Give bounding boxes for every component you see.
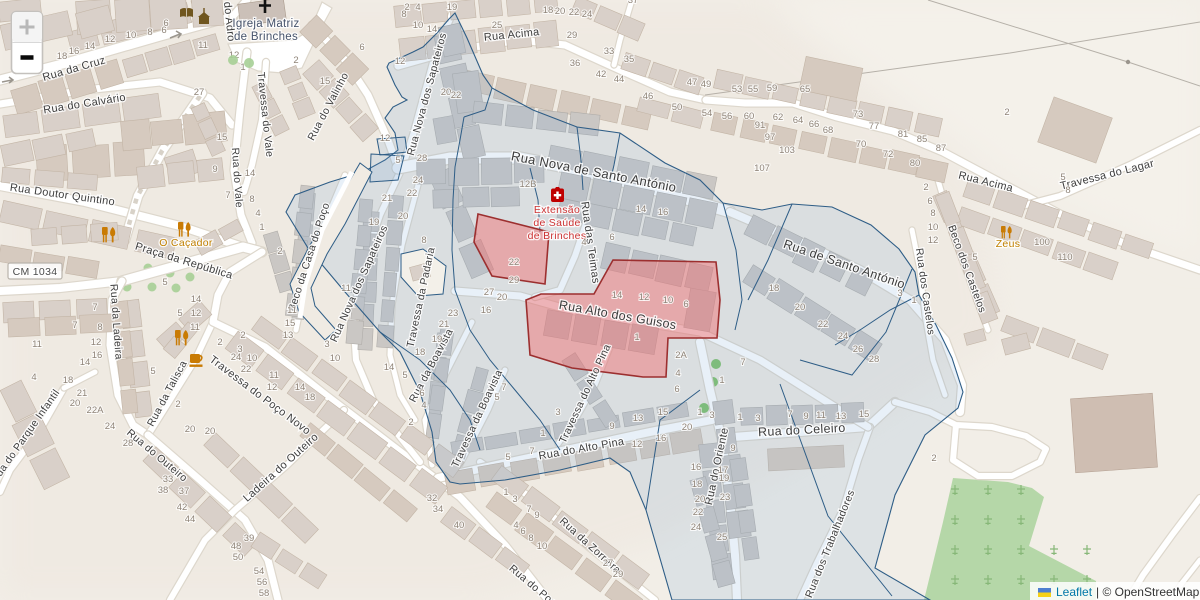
svg-text:2: 2 (240, 330, 245, 341)
svg-text:110: 110 (1057, 252, 1072, 263)
svg-text:20: 20 (398, 211, 409, 222)
svg-text:22: 22 (241, 364, 252, 375)
svg-text:23: 23 (720, 492, 731, 503)
svg-text:20: 20 (205, 426, 216, 437)
svg-text:11: 11 (32, 339, 42, 350)
svg-text:53: 53 (732, 84, 743, 95)
svg-text:22A: 22A (87, 405, 105, 416)
svg-text:15: 15 (320, 76, 331, 87)
svg-text:13: 13 (633, 413, 644, 424)
svg-text:18: 18 (415, 347, 426, 358)
svg-text:55: 55 (748, 84, 759, 95)
svg-text:14: 14 (191, 294, 202, 305)
svg-text:1: 1 (719, 375, 724, 386)
svg-text:14: 14 (85, 41, 96, 52)
svg-text:29: 29 (509, 275, 520, 286)
svg-text:22: 22 (818, 319, 829, 330)
svg-text:de Brinches: de Brinches (234, 31, 298, 43)
svg-text:6: 6 (674, 384, 679, 395)
svg-text:65: 65 (800, 84, 811, 95)
svg-text:7: 7 (501, 382, 506, 393)
svg-text:3: 3 (555, 407, 560, 418)
svg-text:28: 28 (869, 354, 880, 365)
svg-text:2: 2 (931, 453, 936, 464)
svg-text:5: 5 (150, 366, 155, 377)
svg-text:2: 2 (277, 246, 282, 257)
svg-text:37: 37 (628, 0, 639, 6)
svg-text:22: 22 (509, 257, 520, 268)
svg-text:50: 50 (233, 552, 244, 563)
svg-text:18: 18 (769, 283, 780, 294)
svg-text:36: 36 (570, 58, 581, 69)
svg-text:1: 1 (503, 487, 508, 498)
svg-text:6: 6 (520, 526, 525, 537)
svg-text:56: 56 (722, 111, 733, 122)
svg-text:13: 13 (283, 330, 294, 341)
svg-text:25: 25 (717, 532, 728, 543)
svg-text:4: 4 (581, 237, 586, 248)
svg-text:91: 91 (755, 120, 766, 131)
svg-text:23: 23 (448, 308, 459, 319)
svg-text:24: 24 (105, 421, 116, 432)
svg-text:4: 4 (31, 372, 36, 383)
svg-text:8: 8 (1065, 185, 1070, 196)
svg-text:18: 18 (63, 375, 74, 386)
svg-text:26: 26 (853, 344, 864, 355)
svg-text:20: 20 (497, 292, 508, 303)
svg-text:14: 14 (245, 168, 256, 179)
svg-text:5: 5 (402, 370, 407, 381)
svg-text:7: 7 (225, 190, 230, 201)
svg-text:20: 20 (555, 6, 566, 17)
svg-text:60: 60 (744, 111, 755, 122)
svg-text:3: 3 (897, 288, 902, 299)
svg-text:39: 39 (244, 533, 255, 544)
svg-text:38: 38 (158, 485, 169, 496)
svg-text:14: 14 (612, 290, 623, 301)
svg-text:8: 8 (421, 235, 426, 246)
svg-text:5: 5 (177, 308, 182, 319)
svg-text:21: 21 (439, 319, 450, 330)
svg-text:12: 12 (267, 382, 278, 393)
svg-text:2A: 2A (675, 350, 687, 361)
svg-text:73: 73 (853, 109, 864, 120)
svg-text:5: 5 (395, 155, 400, 166)
svg-text:10: 10 (663, 295, 674, 306)
svg-text:2: 2 (1004, 107, 1009, 118)
svg-text:2: 2 (217, 337, 222, 348)
svg-text:3: 3 (709, 410, 714, 421)
svg-text:11: 11 (190, 322, 200, 333)
svg-text:29: 29 (567, 30, 578, 41)
svg-text:1: 1 (259, 222, 264, 233)
svg-text:54: 54 (702, 108, 713, 119)
svg-text:66: 66 (809, 119, 820, 130)
svg-text:35: 35 (624, 54, 635, 65)
svg-text:20: 20 (441, 87, 452, 98)
svg-text:13: 13 (836, 411, 847, 422)
svg-text:6: 6 (359, 42, 364, 53)
svg-text:58: 58 (259, 588, 270, 599)
svg-text:6: 6 (683, 299, 688, 310)
svg-text:44: 44 (614, 74, 625, 85)
svg-text:22: 22 (451, 90, 462, 101)
svg-text:de Saúde: de Saúde (533, 217, 580, 229)
svg-text:87: 87 (936, 143, 947, 154)
svg-text:81: 81 (898, 129, 909, 140)
svg-text:29: 29 (613, 569, 624, 580)
svg-text:4: 4 (513, 520, 518, 531)
svg-text:5: 5 (505, 452, 510, 463)
svg-text:22: 22 (407, 188, 418, 199)
svg-text:103: 103 (779, 145, 795, 156)
svg-text:59: 59 (767, 83, 778, 94)
svg-text:27: 27 (603, 558, 614, 569)
svg-text:14: 14 (80, 357, 91, 368)
svg-text:8: 8 (401, 9, 406, 20)
svg-text:100: 100 (1034, 237, 1050, 248)
svg-text:12: 12 (632, 439, 643, 450)
svg-text:18: 18 (305, 392, 316, 403)
svg-text:8: 8 (147, 27, 152, 38)
svg-text:1: 1 (737, 412, 742, 423)
svg-text:85: 85 (917, 134, 928, 145)
svg-text:2: 2 (175, 399, 180, 410)
svg-text:15: 15 (285, 318, 296, 329)
svg-text:3: 3 (512, 494, 517, 505)
svg-text:42: 42 (177, 502, 188, 513)
svg-text:1: 1 (540, 428, 545, 439)
svg-text:20: 20 (70, 398, 81, 409)
svg-text:107: 107 (754, 163, 770, 174)
svg-text:10: 10 (928, 222, 939, 233)
svg-text:11: 11 (198, 40, 208, 51)
svg-text:8: 8 (97, 322, 102, 333)
svg-text:5: 5 (494, 392, 499, 403)
svg-text:14: 14 (295, 382, 306, 393)
svg-text:16: 16 (691, 462, 702, 473)
svg-text:1: 1 (911, 295, 916, 306)
svg-text:9: 9 (534, 510, 539, 521)
svg-text:21: 21 (382, 193, 393, 204)
svg-text:10: 10 (537, 541, 548, 552)
svg-text:2: 2 (408, 417, 413, 428)
svg-text:80: 80 (910, 158, 921, 169)
svg-text:4: 4 (255, 208, 260, 219)
svg-text:46: 46 (643, 91, 654, 102)
svg-text:6: 6 (609, 232, 614, 243)
svg-text:20: 20 (682, 422, 693, 433)
svg-text:3: 3 (324, 339, 329, 350)
svg-text:11: 11 (341, 283, 351, 294)
svg-text:62: 62 (773, 112, 784, 123)
svg-text:10: 10 (413, 20, 424, 31)
svg-text:42: 42 (596, 69, 607, 80)
svg-text:68: 68 (823, 125, 834, 136)
svg-text:14: 14 (427, 24, 438, 35)
svg-text:18: 18 (543, 5, 554, 16)
svg-text:64: 64 (793, 115, 804, 126)
svg-text:9: 9 (730, 443, 735, 454)
svg-text:12: 12 (105, 34, 116, 45)
svg-text:de Brinches: de Brinches (528, 230, 587, 242)
svg-text:2: 2 (923, 182, 928, 193)
svg-text:8: 8 (528, 533, 533, 544)
svg-text:12: 12 (91, 337, 102, 348)
svg-text:70: 70 (856, 139, 867, 150)
svg-text:6: 6 (419, 388, 424, 399)
svg-text:18: 18 (692, 479, 703, 490)
svg-text:27: 27 (194, 87, 205, 98)
svg-text:12: 12 (639, 292, 650, 303)
svg-text:12: 12 (191, 308, 202, 319)
svg-text:11: 11 (269, 370, 279, 381)
svg-text:CM 1034: CM 1034 (13, 266, 58, 278)
svg-text:2: 2 (293, 55, 298, 66)
svg-text:19: 19 (447, 2, 458, 13)
svg-text:44: 44 (185, 514, 196, 525)
svg-text:7: 7 (92, 302, 97, 313)
svg-text:Igreja Matriz: Igreja Matriz (232, 18, 299, 30)
svg-text:8: 8 (249, 194, 254, 205)
svg-text:10: 10 (330, 353, 341, 364)
svg-text:33: 33 (604, 46, 615, 57)
svg-text:27: 27 (484, 287, 495, 298)
svg-text:20: 20 (695, 494, 706, 505)
svg-text:24: 24 (413, 175, 424, 186)
svg-text:15: 15 (859, 409, 870, 420)
svg-text:4: 4 (675, 368, 680, 379)
svg-text:24: 24 (691, 522, 702, 533)
svg-text:15: 15 (658, 407, 669, 418)
svg-text:3: 3 (755, 413, 760, 424)
svg-text:56: 56 (257, 577, 268, 588)
svg-text:4: 4 (415, 2, 420, 13)
svg-text:12: 12 (928, 235, 939, 246)
svg-text:20: 20 (185, 424, 196, 435)
svg-text:3: 3 (237, 344, 242, 355)
svg-text:34: 34 (433, 504, 444, 515)
svg-text:16: 16 (92, 350, 103, 361)
svg-text:33: 33 (163, 474, 174, 485)
svg-text:28: 28 (417, 153, 428, 164)
svg-text:11: 11 (816, 410, 826, 421)
svg-text:24: 24 (838, 331, 849, 342)
svg-text:9: 9 (803, 411, 808, 422)
svg-text:5: 5 (972, 252, 977, 263)
svg-text:5: 5 (162, 277, 167, 288)
svg-text:40: 40 (454, 520, 465, 531)
svg-text:Leaflet: Leaflet (1056, 585, 1093, 599)
svg-text:10: 10 (126, 30, 137, 41)
svg-text:7: 7 (72, 320, 77, 331)
svg-text:11: 11 (287, 305, 297, 316)
svg-text:12B: 12B (520, 179, 537, 190)
svg-text:19: 19 (432, 334, 443, 345)
svg-text:7: 7 (740, 357, 745, 368)
svg-text:28: 28 (123, 438, 134, 449)
svg-text:1: 1 (697, 407, 702, 418)
svg-text:50: 50 (672, 102, 683, 113)
svg-text:Zeus: Zeus (996, 238, 1021, 250)
svg-text:14: 14 (636, 204, 647, 215)
svg-text:20: 20 (795, 302, 806, 313)
svg-text:1: 1 (634, 332, 639, 343)
svg-text:22: 22 (569, 7, 580, 18)
svg-text:54: 54 (254, 566, 265, 577)
svg-text:7: 7 (529, 446, 534, 457)
svg-text:6: 6 (163, 18, 168, 29)
svg-text:5: 5 (1060, 172, 1065, 183)
svg-text:49: 49 (701, 79, 712, 90)
svg-text:72: 72 (883, 149, 894, 160)
svg-text:10: 10 (247, 353, 258, 364)
svg-text:16: 16 (69, 46, 80, 57)
svg-text:9: 9 (212, 164, 217, 175)
svg-text:14: 14 (384, 362, 395, 373)
svg-text:47: 47 (687, 77, 698, 88)
svg-text:77: 77 (869, 121, 880, 132)
svg-text:O Caçador: O Caçador (159, 237, 213, 249)
svg-text:12: 12 (380, 133, 391, 144)
svg-text:| © OpenStreetMap: | © OpenStreetMap (1096, 585, 1200, 599)
svg-text:7: 7 (787, 409, 792, 420)
svg-text:19: 19 (719, 473, 730, 484)
svg-text:25: 25 (492, 20, 503, 31)
svg-text:16: 16 (658, 207, 669, 218)
svg-text:12: 12 (395, 56, 406, 67)
svg-text:7: 7 (526, 504, 531, 515)
svg-text:22: 22 (693, 507, 704, 518)
svg-text:Extensão: Extensão (534, 204, 580, 216)
svg-text:15: 15 (217, 132, 228, 143)
svg-text:97: 97 (765, 132, 776, 143)
svg-text:18: 18 (57, 51, 68, 62)
svg-text:16: 16 (656, 433, 667, 444)
svg-text:9: 9 (609, 421, 614, 432)
svg-text:6: 6 (927, 196, 932, 207)
svg-text:16: 16 (481, 305, 492, 316)
svg-text:8: 8 (930, 208, 935, 219)
svg-text:24: 24 (582, 9, 593, 20)
svg-text:32: 32 (427, 493, 438, 504)
svg-text:19: 19 (369, 217, 380, 228)
svg-text:48: 48 (231, 541, 242, 552)
svg-text:4: 4 (421, 400, 426, 411)
svg-text:37: 37 (179, 486, 190, 497)
